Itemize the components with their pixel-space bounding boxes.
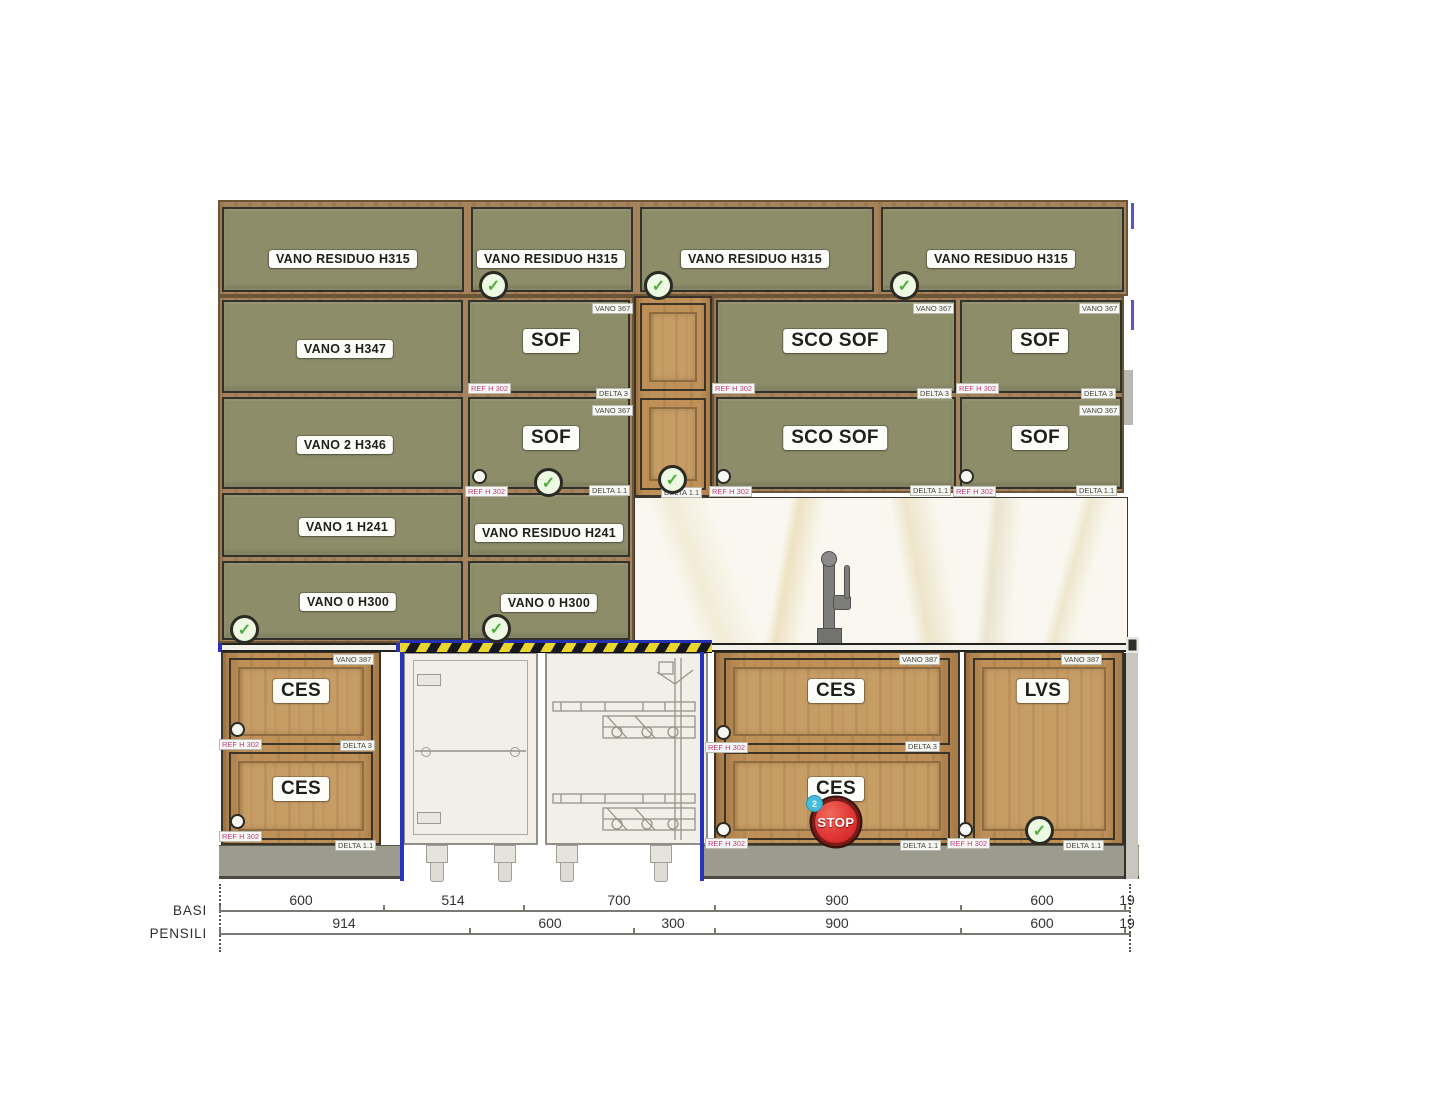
vano-tag: VANO 387 (1062, 655, 1101, 664)
panel-label: VANO RESIDUO H315 (269, 250, 417, 268)
info-dot-icon[interactable] (230, 814, 245, 829)
delta-tag: DELTA 3 (1082, 389, 1115, 398)
basi-dim: 900 (825, 892, 848, 908)
check-icon[interactable]: ✓ (644, 271, 673, 300)
vano-tag: VANO 367 (1080, 406, 1119, 415)
plinth-right (703, 845, 1139, 879)
door-label: LVS (1017, 679, 1069, 703)
panel-label: VANO RESIDUO H241 (475, 524, 623, 542)
delta-tag: DELTA 1.1 (911, 486, 950, 495)
info-dot-icon[interactable] (716, 469, 731, 484)
panel-label: SCO SOF (783, 329, 887, 353)
panel-label: SOF (1012, 329, 1068, 353)
drawer-label: CES (273, 679, 329, 703)
check-icon[interactable]: ✓ (1025, 816, 1054, 845)
info-dot-icon[interactable] (472, 469, 487, 484)
basi-dim: 600 (289, 892, 312, 908)
drawer-label: CES (273, 777, 329, 801)
pensili-dimension-line (219, 933, 1131, 935)
delta-tag: DELTA 3 (906, 742, 939, 751)
vano-tag: VANO 367 (593, 304, 632, 313)
panel-label: VANO RESIDUO H315 (477, 250, 625, 268)
delta-tag: DELTA 3 (341, 741, 374, 750)
ref-tag: REF H 302 (466, 487, 507, 496)
dimension-origin-line (219, 884, 221, 952)
panel-label: VANO 3 H347 (297, 340, 393, 358)
pensili-row-label: PENSILI (117, 926, 207, 941)
end-panel-sliver (1124, 653, 1138, 879)
panel-label: VANO 0 H300 (300, 593, 396, 611)
vano-tag: VANO 387 (900, 655, 939, 664)
panel-label: VANO RESIDUO H315 (681, 250, 829, 268)
wood-door-top[interactable] (640, 303, 706, 391)
info-dot-icon[interactable] (716, 725, 731, 740)
ref-tag: REF H 302 (710, 487, 751, 496)
delta-tag: DELTA 1.1 (901, 841, 940, 850)
panel-label: SCO SOF (783, 426, 887, 450)
drawer-label: CES (808, 679, 864, 703)
pensili-dim: 900 (825, 915, 848, 931)
marble-backsplash (634, 497, 1128, 644)
base-corner-unit[interactable] (545, 652, 708, 845)
delta-tag: DELTA 1.1 (590, 486, 629, 495)
check-icon[interactable]: ✓ (482, 614, 511, 643)
hazard-stripe (400, 640, 712, 653)
vano-tag: VANO 387 (334, 655, 373, 664)
plinth-left (219, 845, 400, 879)
info-dot-icon[interactable] (716, 822, 731, 837)
vano-tag: VANO 367 (914, 304, 953, 313)
delta-tag: DELTA 1.1 (336, 841, 375, 850)
vano-tag: VANO 367 (1080, 304, 1119, 313)
check-icon[interactable]: ✓ (658, 465, 687, 494)
delta-tag: DELTA 3 (597, 389, 630, 398)
basi-dim: 19 (1119, 892, 1135, 908)
ref-tag: REF H 302 (713, 384, 754, 393)
check-icon[interactable]: ✓ (479, 271, 508, 300)
countertop-right (712, 643, 1136, 652)
panel-label: VANO RESIDUO H315 (927, 250, 1075, 268)
pensili-dim: 600 (538, 915, 561, 931)
panel-label: SOF (1012, 426, 1068, 450)
pensili-dim: 19 (1119, 915, 1135, 931)
pensili-dim: 300 (661, 915, 684, 931)
basi-dimension-line (219, 910, 1131, 912)
pensili-dim: 600 (1030, 915, 1053, 931)
basi-dim: 514 (441, 892, 464, 908)
end-panel-sliver-top (1124, 370, 1133, 425)
pensili-dim: 914 (332, 915, 355, 931)
basi-dim: 600 (1030, 892, 1053, 908)
panel-label: VANO 0 H300 (501, 594, 597, 612)
panel-label: SOF (523, 426, 579, 450)
basi-dim: 700 (607, 892, 630, 908)
base-door-unit-open[interactable] (403, 652, 538, 845)
counter-end-cap (1126, 637, 1139, 653)
check-icon[interactable]: ✓ (534, 468, 563, 497)
ref-tag: REF H 302 (948, 839, 989, 848)
ref-tag: REF H 302 (469, 384, 510, 393)
vano-tag: VANO 367 (593, 406, 632, 415)
delta-tag: DELTA 1.1 (1077, 486, 1116, 495)
ref-tag: REF H 302 (220, 832, 261, 841)
ref-tag: REF H 302 (706, 743, 747, 752)
info-dot-icon[interactable] (959, 469, 974, 484)
check-icon[interactable]: ✓ (890, 271, 919, 300)
corner-pullout-mechanism (547, 654, 706, 843)
ref-tag: REF H 302 (954, 487, 995, 496)
stop-count-badge[interactable]: 2 (806, 795, 823, 812)
info-dot-icon[interactable] (230, 722, 245, 737)
basi-row-label: BASI (117, 903, 207, 918)
check-icon[interactable]: ✓ (230, 615, 259, 644)
panel-label: VANO 1 H241 (299, 518, 395, 536)
kitchen-elevation-canvas: VANO RESIDUO H315 VANO RESIDUO H315 VANO… (0, 0, 1443, 1093)
delta-tag: DELTA 1.1 (1064, 841, 1103, 850)
info-dot-icon[interactable] (958, 822, 973, 837)
countertop-left (218, 643, 400, 652)
panel-label: VANO 2 H346 (297, 436, 393, 454)
delta-tag: DELTA 3 (918, 389, 951, 398)
ref-tag: REF H 302 (957, 384, 998, 393)
ref-tag: REF H 302 (706, 839, 747, 848)
panel-label: SOF (523, 329, 579, 353)
ref-tag: REF H 302 (220, 740, 261, 749)
